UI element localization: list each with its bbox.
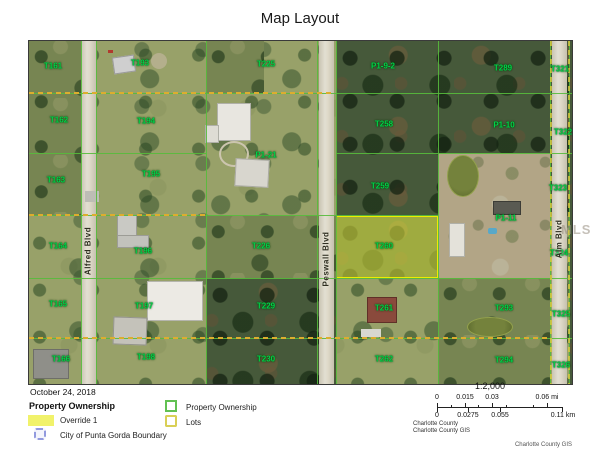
override-swatch bbox=[28, 415, 54, 426]
parcel-label: T258 bbox=[375, 120, 393, 129]
parcel-label: T196 bbox=[134, 247, 152, 256]
building bbox=[217, 103, 251, 141]
parcel-label: T321 bbox=[551, 65, 569, 74]
parcel-label: T193 bbox=[131, 59, 149, 68]
parcel-label: T322 bbox=[554, 128, 572, 137]
parcel-label: T323 bbox=[549, 184, 567, 193]
scale-km-tick-label: 0 bbox=[435, 412, 439, 419]
building bbox=[117, 215, 137, 237]
lots-line bbox=[29, 214, 206, 216]
scale-credits: Charlotte County Charlotte County GIS bbox=[413, 421, 470, 435]
parcel-label: T195 bbox=[142, 170, 160, 179]
parcel-label: T293 bbox=[495, 304, 513, 313]
building bbox=[113, 316, 148, 345]
scale-km-tick-label: 0.0275 bbox=[457, 412, 478, 419]
parcel-label: T161 bbox=[44, 62, 62, 71]
building bbox=[234, 158, 269, 188]
parcel-label: T162 bbox=[50, 116, 68, 125]
scale-tick bbox=[465, 403, 466, 407]
watermark: MLS bbox=[561, 222, 591, 237]
parcel-line bbox=[336, 153, 573, 154]
road-label: Alfred Blvd bbox=[84, 227, 93, 275]
parcel-label: T294 bbox=[495, 356, 513, 365]
lots-line bbox=[568, 41, 570, 385]
lots-swatch bbox=[165, 415, 177, 427]
building bbox=[361, 329, 381, 337]
scale-ratio: 1:2,000 bbox=[455, 381, 525, 391]
scale-tick bbox=[437, 403, 438, 407]
legend-heading: Property Ownership bbox=[29, 401, 115, 411]
scale-tick bbox=[547, 403, 548, 407]
scale-mi-tick-label: 0.06 mi bbox=[536, 394, 559, 401]
scale-km-tick-label: 0.055 bbox=[491, 412, 509, 419]
pool bbox=[488, 228, 497, 234]
aerial-map: T161T193T225P1-9-2T289T321T162T194T258P1… bbox=[28, 40, 573, 385]
parcel-label: T289 bbox=[494, 64, 512, 73]
parcel-label: T225 bbox=[257, 60, 275, 69]
footer-credit: Charlotte County GIS bbox=[460, 442, 572, 448]
credit-line-1: Charlotte County bbox=[413, 421, 470, 428]
parcel-label: P1-21 bbox=[255, 151, 276, 160]
legend-item-property: Property Ownership bbox=[186, 403, 257, 412]
scale-mi-tick-label: 0.03 bbox=[485, 394, 499, 401]
sand-patch bbox=[151, 53, 167, 69]
scale-tick bbox=[451, 405, 452, 407]
parcel-label: T326 bbox=[552, 361, 570, 370]
building bbox=[449, 223, 465, 257]
legend-item-override: Override 1 bbox=[60, 416, 97, 425]
parcel-label: P1-10 bbox=[493, 121, 514, 130]
parcel-label: P1-11 bbox=[496, 214, 517, 223]
lots-line bbox=[29, 337, 550, 339]
property-ownership-swatch bbox=[165, 400, 177, 412]
road-label: Peswall Blvd bbox=[322, 232, 331, 287]
parcel-label: T194 bbox=[137, 117, 155, 126]
scale-mi-tick-label: 0.015 bbox=[456, 394, 474, 401]
lots-line bbox=[550, 41, 552, 385]
scale-tick bbox=[478, 405, 479, 407]
map-layout-page: Map Layout bbox=[0, 0, 600, 463]
scale-tick bbox=[506, 405, 507, 407]
parcel-label: T230 bbox=[257, 355, 275, 364]
parcel-label: T226 bbox=[252, 242, 270, 251]
parcel-label: T165 bbox=[49, 300, 67, 309]
credit-line-2: Charlotte County GIS bbox=[413, 428, 470, 435]
parcel-line bbox=[29, 278, 573, 279]
scale-tick bbox=[533, 405, 534, 407]
building bbox=[147, 281, 203, 321]
car bbox=[108, 50, 113, 53]
parcel-line bbox=[29, 153, 206, 154]
parcel-label: T164 bbox=[49, 242, 67, 251]
map-date: October 24, 2018 bbox=[30, 387, 96, 397]
parcel-label: T163 bbox=[47, 176, 65, 185]
legend-item-lots: Lots bbox=[186, 418, 201, 427]
parcel-label: T259 bbox=[371, 182, 389, 191]
parcel-label: T229 bbox=[257, 302, 275, 311]
parcel-label-highlighted: T260 bbox=[375, 242, 393, 251]
legend-item-city-boundary: City of Punta Gorda Boundary bbox=[60, 431, 167, 440]
parcel-label: T198 bbox=[137, 353, 155, 362]
aerial-trees-t225 bbox=[206, 41, 264, 93]
parcel-label: T197 bbox=[135, 302, 153, 311]
parcel-label: T325 bbox=[552, 310, 570, 319]
scale-tick bbox=[492, 403, 493, 407]
building bbox=[205, 125, 219, 143]
parcel-label: T166 bbox=[52, 355, 70, 364]
pond bbox=[447, 155, 479, 197]
scale-mi-tick-label: 0 bbox=[435, 394, 439, 401]
scale-km-tick-label: 0.11 km bbox=[551, 412, 575, 419]
parcel-label: T262 bbox=[375, 355, 393, 364]
page-title: Map Layout bbox=[0, 10, 600, 27]
building bbox=[33, 349, 69, 379]
parcel-label: T261 bbox=[375, 304, 393, 313]
lots-line bbox=[29, 92, 334, 94]
pond bbox=[467, 317, 513, 337]
city-boundary-swatch bbox=[34, 428, 46, 440]
parcel-label: P1-9-2 bbox=[371, 62, 395, 71]
